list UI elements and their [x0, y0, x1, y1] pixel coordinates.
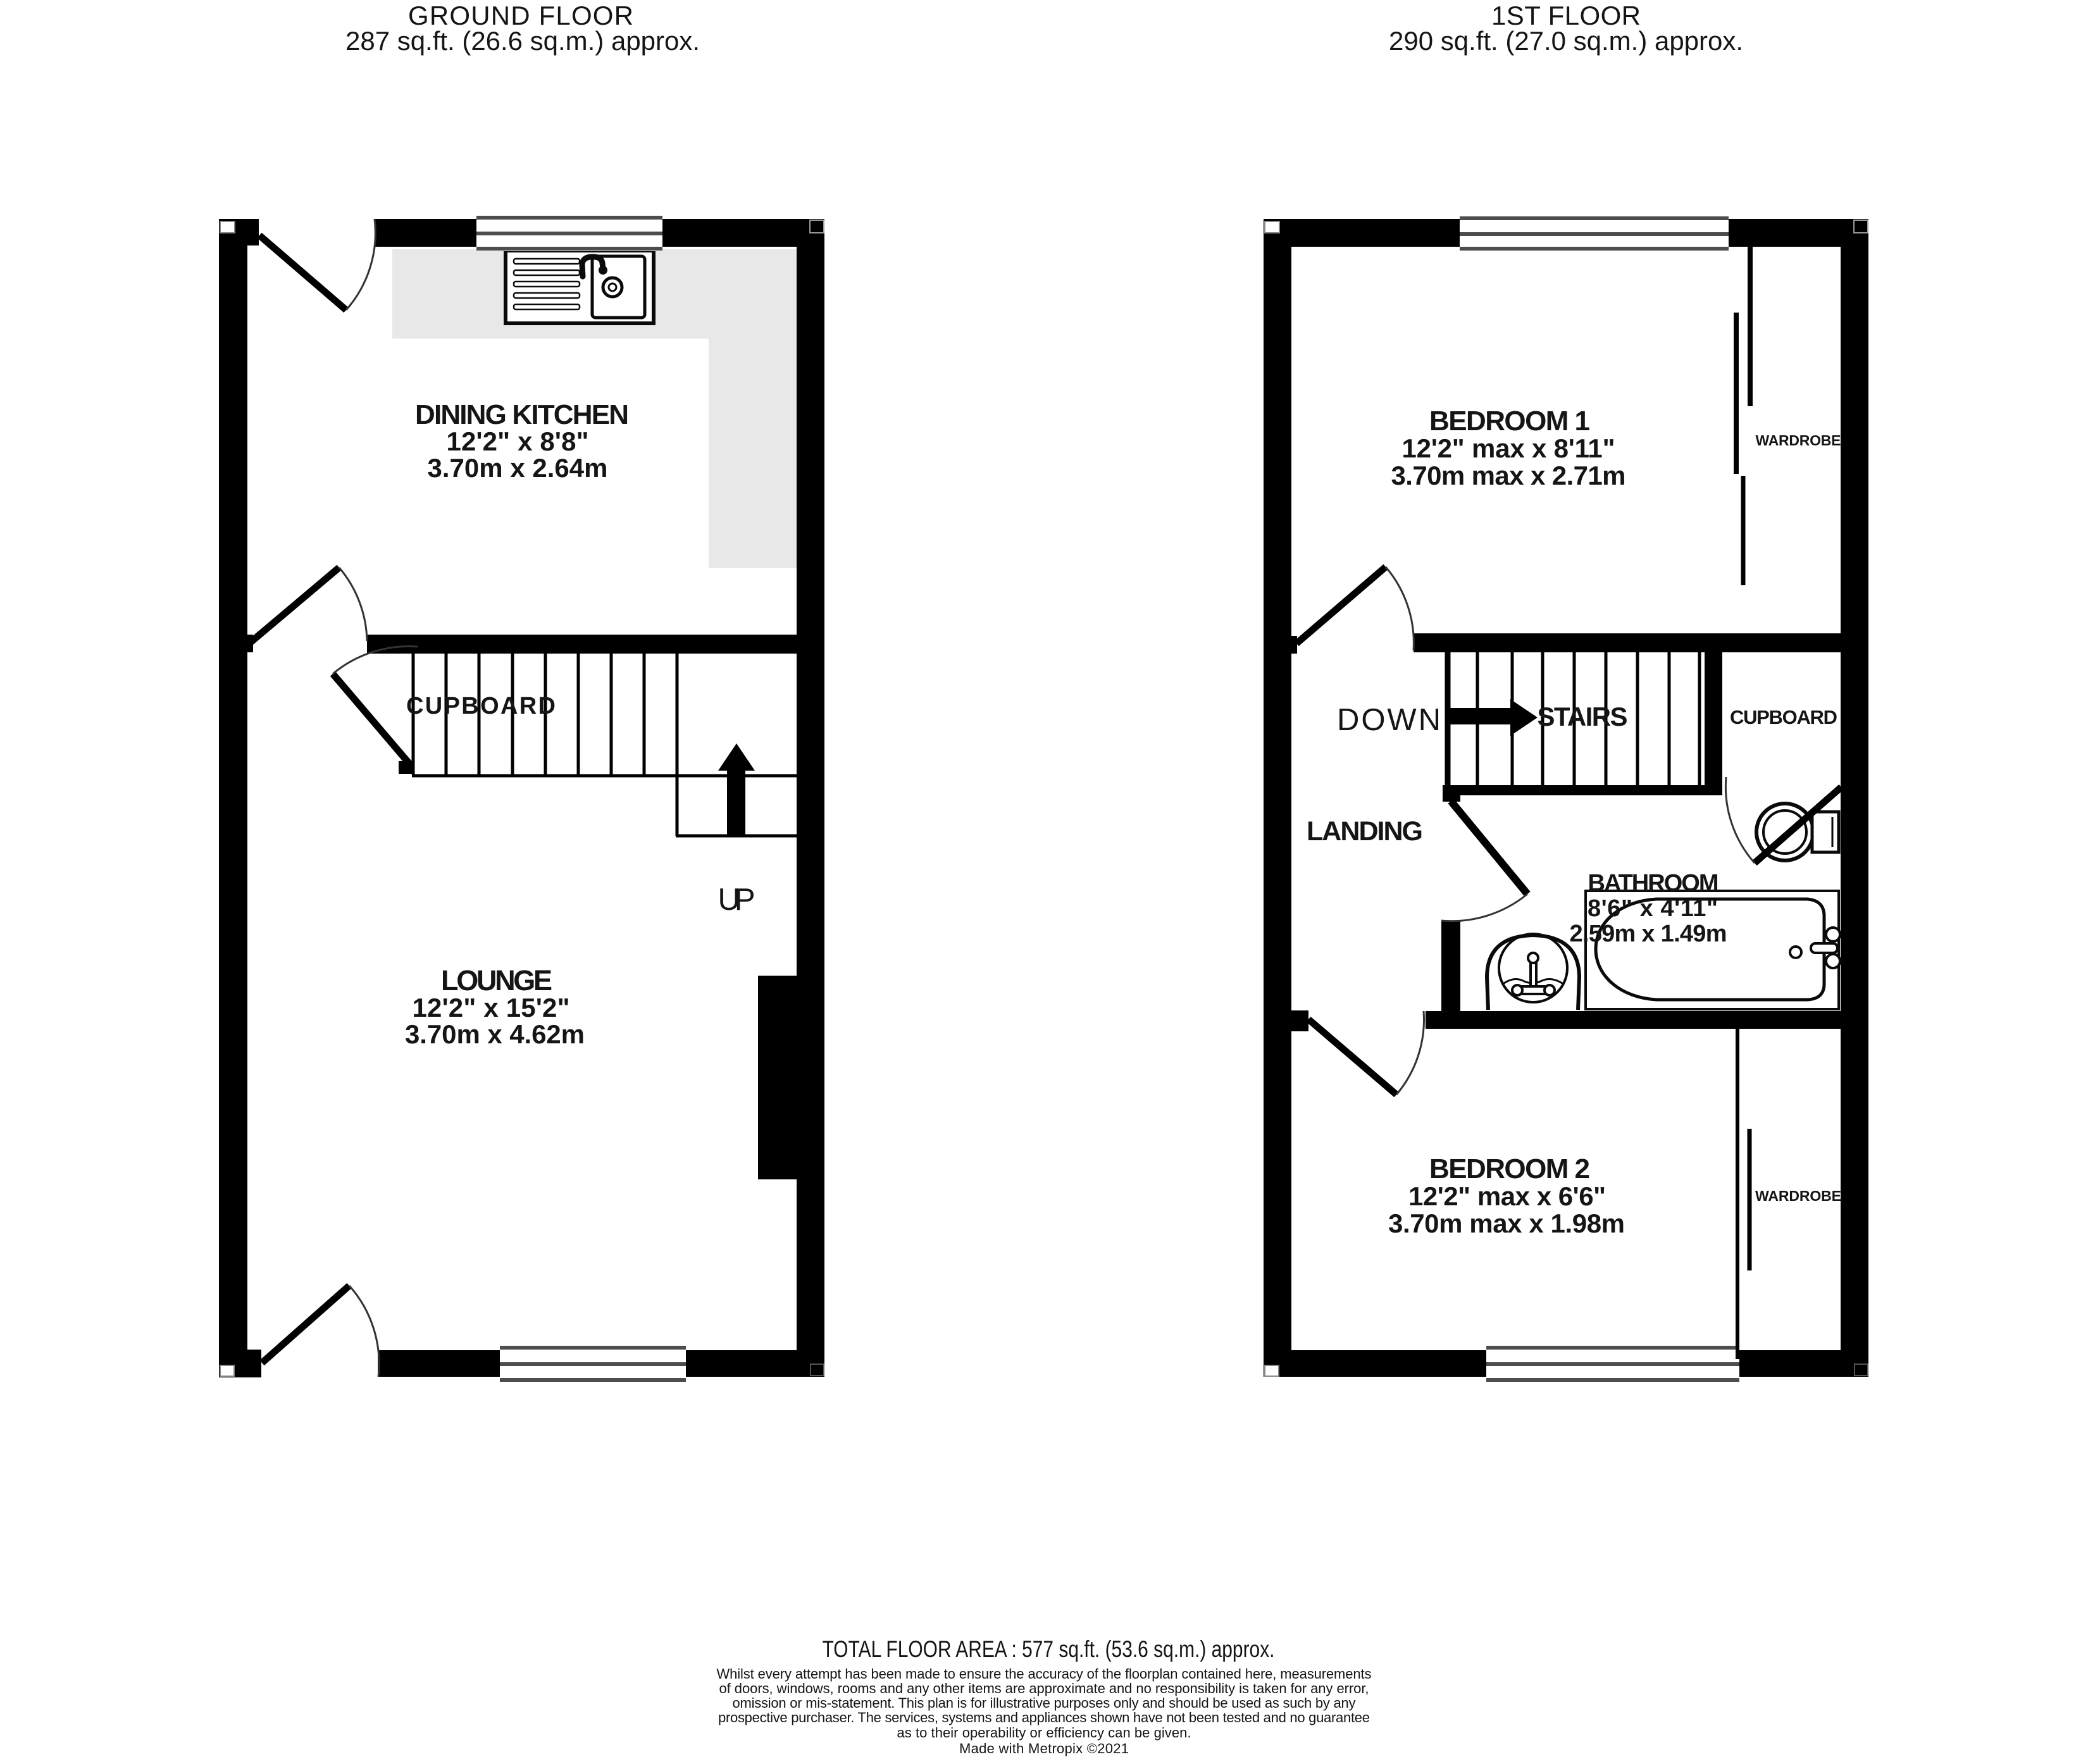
svg-text:TOTAL FLOOR AREA : 577 sq.ft.: TOTAL FLOOR AREA : 577 sq.ft. (53.6 sq.m… — [823, 1636, 1275, 1662]
svg-text:BEDROOM 1: BEDROOM 1 — [1429, 406, 1590, 437]
svg-text:Made with Metropix ©2021: Made with Metropix ©2021 — [959, 1741, 1129, 1756]
svg-text:Whilst every attempt has been: Whilst every attempt has been made to en… — [717, 1666, 1372, 1682]
svg-text:as to their operability or eff: as to their operability or efficiency ca… — [897, 1725, 1191, 1741]
svg-text:CUPBOARD: CUPBOARD — [1730, 706, 1837, 728]
svg-text:3.70m max x 1.98m: 3.70m max x 1.98m — [1388, 1208, 1625, 1238]
svg-text:3.70m x 2.64m: 3.70m x 2.64m — [428, 453, 608, 483]
svg-text:omission or mis-statement. Thi: omission or mis-statement. This plan is … — [733, 1695, 1356, 1711]
svg-text:of doors, windows, rooms and a: of doors, windows, rooms and any other i… — [719, 1680, 1369, 1696]
svg-text:LANDING: LANDING — [1307, 816, 1423, 847]
svg-text:3.70m max x 2.71m: 3.70m max x 2.71m — [1391, 461, 1626, 490]
svg-text:UP: UP — [718, 883, 755, 917]
svg-text:BEDROOM 2: BEDROOM 2 — [1429, 1153, 1590, 1184]
svg-text:3.70m x 4.62m: 3.70m x 4.62m — [405, 1019, 585, 1049]
svg-text:8'6" x 4'11": 8'6" x 4'11" — [1588, 895, 1718, 922]
svg-text:12'2" max x 6'6": 12'2" max x 6'6" — [1408, 1181, 1606, 1211]
svg-text:CUPBOARD: CUPBOARD — [406, 693, 556, 719]
svg-text:290 sq.ft. (27.0 sq.m.) approx: 290 sq.ft. (27.0 sq.m.) approx. — [1389, 26, 1743, 56]
svg-text:prospective purchaser. The ser: prospective purchaser. The services, sys… — [718, 1710, 1370, 1725]
svg-text:DOWN: DOWN — [1337, 703, 1441, 737]
svg-text:WARDROBE: WARDROBE — [1755, 1188, 1841, 1204]
svg-text:287 sq.ft. (26.6 sq.m.) approx: 287 sq.ft. (26.6 sq.m.) approx. — [345, 26, 700, 56]
svg-text:BATHROOM: BATHROOM — [1588, 870, 1719, 897]
svg-text:12'2" max x 8'11": 12'2" max x 8'11" — [1402, 433, 1615, 463]
svg-text:12'2" x 15'2": 12'2" x 15'2" — [413, 993, 570, 1022]
svg-text:2.59m x 1.49m: 2.59m x 1.49m — [1570, 921, 1727, 947]
svg-text:DINING KITCHEN: DINING KITCHEN — [415, 399, 629, 430]
svg-text:WARDROBE: WARDROBE — [1756, 432, 1841, 449]
svg-text:LOUNGE: LOUNGE — [441, 964, 552, 997]
svg-text:12'2" x 8'8": 12'2" x 8'8" — [447, 426, 589, 456]
svg-text:STAIRS: STAIRS — [1538, 702, 1628, 731]
